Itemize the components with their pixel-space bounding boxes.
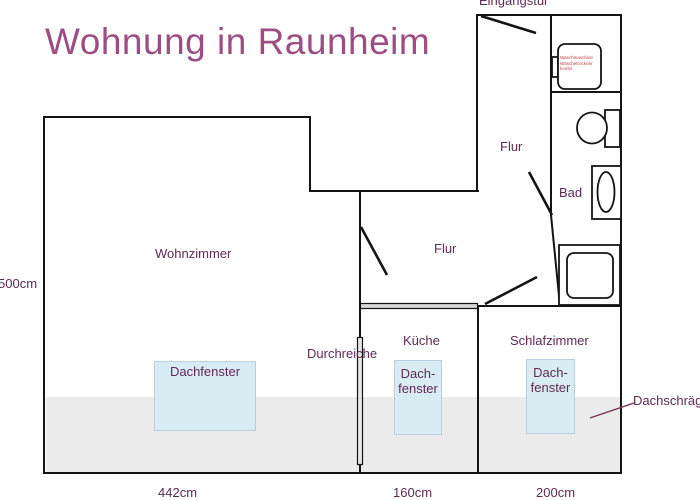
door-bad [529,172,552,215]
room-label-kueche: Küche [403,334,440,348]
skylight-label-kueche: Dach- fenster [394,366,442,396]
shower-basin-icon [567,253,613,298]
label-durchreiche: Durchreiche [307,347,377,361]
room-label-bad: Bad [559,186,582,200]
skylight-label-line2: fenster [394,381,442,396]
skylight-label-line1: Dach- [526,365,575,380]
washer-label: Waschmaschine Wäschetrockner kombi [560,55,600,72]
measurement-kueche-width: 160cm [393,486,432,500]
skylight-label-schlafzimmer: Dach- fenster [526,365,575,395]
skylight-label-line1: Dach- [394,366,442,381]
floorplan-canvas: Wohnung in Raunheim Wohnzimmer Flur Flur… [0,0,700,500]
skylight-label-line2: fenster [526,380,575,395]
door-wohnzimmer [361,227,387,275]
door-eingangstuer [481,16,536,33]
sink-icon [592,166,621,219]
measurement-wohnzimmer-width: 442cm [158,486,197,500]
sink-basin-icon [598,172,615,212]
measurement-schlafzimmer-width: 200cm [536,486,575,500]
wall-kueche-opening [361,304,478,309]
toilet-tank-icon [605,110,620,147]
washer-label-line3: kombi [560,66,600,72]
label-eingangstuer: Eingangstür [479,0,548,8]
label-dachschraege: Dachschräge [633,394,700,408]
room-label-flur-main: Flur [434,242,456,256]
washer-handle-icon [552,57,558,77]
toilet-bowl-icon [577,113,607,144]
measurement-height-left: 500cm [0,277,37,291]
skylight-label-wohnzimmer: Dachfenster [154,364,256,379]
shower-icon [559,245,620,305]
room-label-wohnzimmer: Wohnzimmer [155,247,231,261]
room-label-flur-top: Flur [500,140,522,154]
room-label-schlafzimmer: Schlafzimmer [510,334,589,348]
door-schlafzimmer [485,277,537,304]
page-title: Wohnung in Raunheim [45,21,430,63]
wall-bad-left-slanted [551,215,560,306]
